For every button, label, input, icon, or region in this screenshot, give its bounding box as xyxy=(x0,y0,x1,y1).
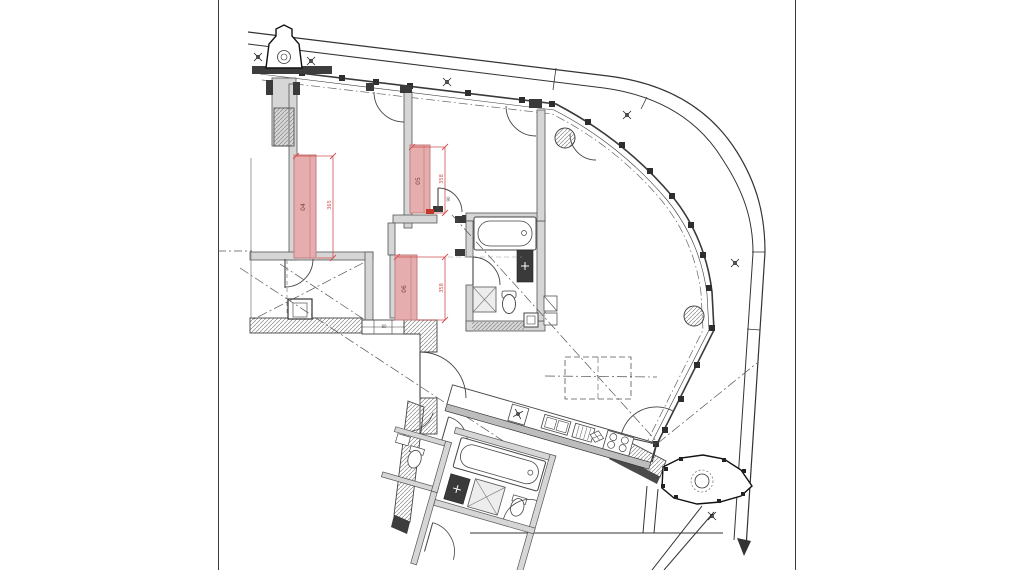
door-arc xyxy=(473,257,500,285)
ornament-bottom-right xyxy=(661,455,752,504)
window-mullion xyxy=(688,222,694,228)
facade-joint-tick xyxy=(641,97,647,109)
lower-wall-west xyxy=(411,491,437,565)
hatch-wall-corner xyxy=(404,320,437,352)
wall-room2-living xyxy=(537,110,545,221)
door-arc xyxy=(285,259,313,287)
facade-continuation xyxy=(652,506,702,570)
window-mullion xyxy=(519,97,525,103)
glazed-facade xyxy=(258,68,715,462)
pier-ornament-stud xyxy=(679,457,683,461)
facade-joint-tick xyxy=(553,68,556,90)
dishwasher xyxy=(572,423,595,442)
wall-hall-east xyxy=(365,252,373,322)
wall-bath-west-upper xyxy=(466,221,473,257)
pier-ornament-stud xyxy=(722,458,726,462)
hatch-pier xyxy=(274,108,294,146)
door-jamb xyxy=(400,85,412,93)
wall-corridor-west-upper xyxy=(388,223,395,255)
floor-plan-page: 0405063653583589080 xyxy=(0,0,1011,570)
window-mullion xyxy=(662,427,668,433)
door-leaf xyxy=(441,417,448,442)
window-mullion xyxy=(465,90,471,96)
washing-machine xyxy=(524,313,538,327)
dashdot-sightline xyxy=(658,363,757,443)
lower-wall-east xyxy=(511,532,534,570)
door-jamb xyxy=(266,80,273,95)
wall-line xyxy=(654,489,658,533)
pier-ornament-stud xyxy=(674,495,678,499)
window-mullion xyxy=(669,193,675,199)
wall-room2-south xyxy=(393,215,437,223)
floor-plan-layers: 0405063653583589080 xyxy=(218,0,796,570)
glazing-line xyxy=(258,68,714,462)
niche-frame-inner xyxy=(293,303,307,317)
hatch-wall-hall-south xyxy=(250,318,362,333)
door-jamb xyxy=(529,99,542,108)
highlighted-wardrobes: 040506 xyxy=(294,145,430,320)
lower-east-walls xyxy=(643,486,658,533)
pier-ornament-stud xyxy=(717,499,721,503)
door-jamb xyxy=(462,215,466,223)
pilaster-outline xyxy=(266,25,302,68)
bathroom-fixtures xyxy=(473,217,538,327)
doors xyxy=(285,92,673,444)
toilet-bowl xyxy=(503,295,516,314)
ornament-top-left xyxy=(252,25,332,74)
structural-columns xyxy=(555,128,704,326)
column-hatched xyxy=(555,128,575,148)
window-mullion xyxy=(585,119,591,125)
pier-ornament-stud xyxy=(664,467,668,471)
window-mullion xyxy=(706,285,712,291)
window-mullion xyxy=(700,252,706,258)
dim-marker xyxy=(426,209,434,214)
floor-plan-canvas: 0405063653583589080 xyxy=(0,0,1011,570)
pier-ornament-stud xyxy=(661,484,665,488)
window-mullion xyxy=(339,75,345,81)
door-jamb xyxy=(366,83,374,91)
window-mullion xyxy=(678,396,684,402)
wardrobe-04-label: 04 xyxy=(300,203,307,211)
facade-end-tip xyxy=(737,538,751,556)
window-mullion xyxy=(709,325,715,331)
pier-ornament-stud xyxy=(742,469,746,473)
dim-value: 358 xyxy=(439,283,445,293)
door-jamb xyxy=(293,82,300,95)
small-dim: 80 xyxy=(381,324,387,329)
window-mullion xyxy=(619,142,625,148)
window-mullion xyxy=(549,101,555,107)
window-door-arc xyxy=(374,92,404,122)
window-mullion xyxy=(694,362,700,368)
wardrobe-05-label: 05 xyxy=(415,177,422,185)
dashdot-table-axis xyxy=(545,376,657,377)
door-jamb xyxy=(455,249,465,256)
wall-line xyxy=(643,486,647,533)
window-mullion xyxy=(647,168,653,174)
door-arc xyxy=(424,523,461,560)
pier-ornament-stud xyxy=(741,492,745,496)
bath-floor-hatch xyxy=(472,322,524,330)
column-hatched xyxy=(684,306,704,326)
facade-continuation xyxy=(664,512,714,570)
wardrobe-06-label: 06 xyxy=(401,285,408,293)
dim-value: 365 xyxy=(327,200,333,210)
kitchen-counter-end xyxy=(447,385,453,404)
small-dim: 90 xyxy=(446,196,451,202)
dim-value: 358 xyxy=(439,174,445,184)
facade-joint-tick xyxy=(747,329,760,330)
